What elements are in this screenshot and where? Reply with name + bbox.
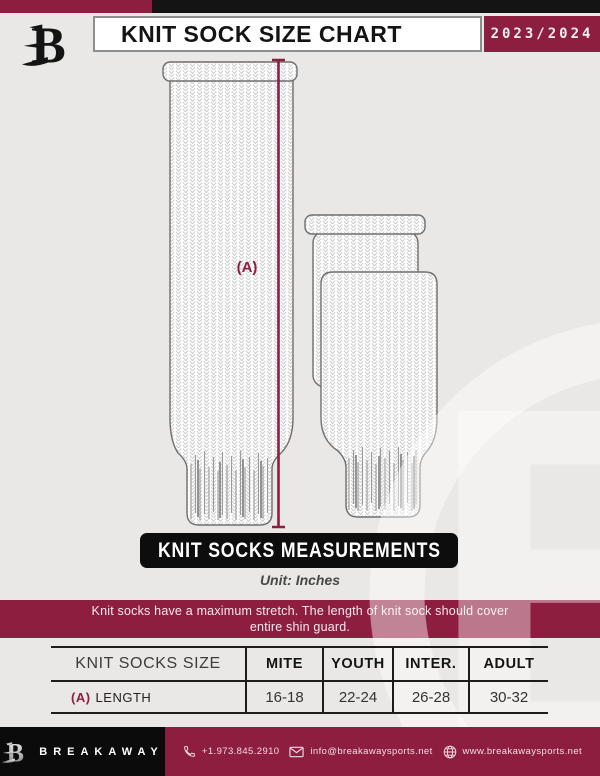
footer-website: www.breakawaysports.net bbox=[443, 745, 583, 759]
table-header-size: KNIT SOCKS SIZE bbox=[51, 648, 247, 682]
knit-sock-size-chart-page: B KNIT SOCK SIZE CHART 2023/2024 bbox=[0, 0, 600, 776]
table-header-adult: ADULT bbox=[470, 648, 548, 682]
table-row-length-label: (A) LENGTH bbox=[51, 682, 247, 712]
size-table: KNIT SOCKS SIZE MITE YOUTH INTER. ADULT … bbox=[51, 646, 548, 714]
footer-contacts: +1.973.845.2910 info@breakawaysports.net bbox=[165, 727, 600, 776]
large-sock-illustration bbox=[163, 62, 297, 525]
measurements-banner-label: KNIT SOCKS MEASUREMENTS bbox=[158, 539, 441, 563]
measurements-banner: KNIT SOCKS MEASUREMENTS bbox=[140, 533, 458, 568]
table-header-inter: INTER. bbox=[394, 648, 470, 682]
length-value-youth: 22-24 bbox=[324, 682, 394, 712]
season-label: 2023/2024 bbox=[491, 26, 594, 42]
season-badge: 2023/2024 bbox=[484, 16, 600, 52]
globe-icon bbox=[443, 745, 457, 759]
table-header-youth: YOUTH bbox=[324, 648, 394, 682]
top-strip-maroon bbox=[0, 0, 152, 13]
page-title-box: KNIT SOCK SIZE CHART bbox=[93, 16, 482, 52]
table-header-mite: MITE bbox=[247, 648, 324, 682]
phone-icon bbox=[183, 745, 196, 758]
length-label: LENGTH bbox=[96, 690, 152, 705]
length-value-mite: 16-18 bbox=[247, 682, 324, 712]
stretch-notice-banner: Knit socks have a maximum stretch. The l… bbox=[0, 600, 600, 638]
length-prefix-a: (A) bbox=[71, 690, 91, 705]
top-strip-black bbox=[152, 0, 600, 13]
footer-website-url: www.breakawaysports.net bbox=[463, 746, 583, 757]
footer: B BREAKAWAY +1.973.845.2910 bbox=[0, 727, 600, 776]
footer-brand: B BREAKAWAY bbox=[0, 727, 165, 776]
footer-brand-name: BREAKAWAY bbox=[35, 746, 164, 758]
unit-label: Unit: Inches bbox=[0, 572, 600, 588]
page-title: KNIT SOCK SIZE CHART bbox=[95, 21, 402, 48]
footer-email: info@breakawaysports.net bbox=[289, 746, 432, 758]
footer-phone: +1.973.845.2910 bbox=[183, 745, 280, 758]
measurement-label-a: (A) bbox=[237, 259, 258, 276]
length-value-inter: 26-28 bbox=[394, 682, 470, 712]
length-value-adult: 30-32 bbox=[470, 682, 548, 712]
notice-line-1: Knit socks have a maximum stretch. The l… bbox=[92, 603, 509, 619]
envelope-icon bbox=[289, 746, 304, 758]
top-accent-strip bbox=[0, 0, 600, 13]
footer-email-address: info@breakawaysports.net bbox=[310, 746, 432, 757]
breakaway-footer-logo-icon: B bbox=[1, 737, 27, 767]
breakaway-logo-icon: B bbox=[20, 15, 72, 73]
footer-phone-number: +1.973.845.2910 bbox=[202, 746, 280, 757]
notice-line-2: entire shin guard. bbox=[250, 619, 350, 635]
